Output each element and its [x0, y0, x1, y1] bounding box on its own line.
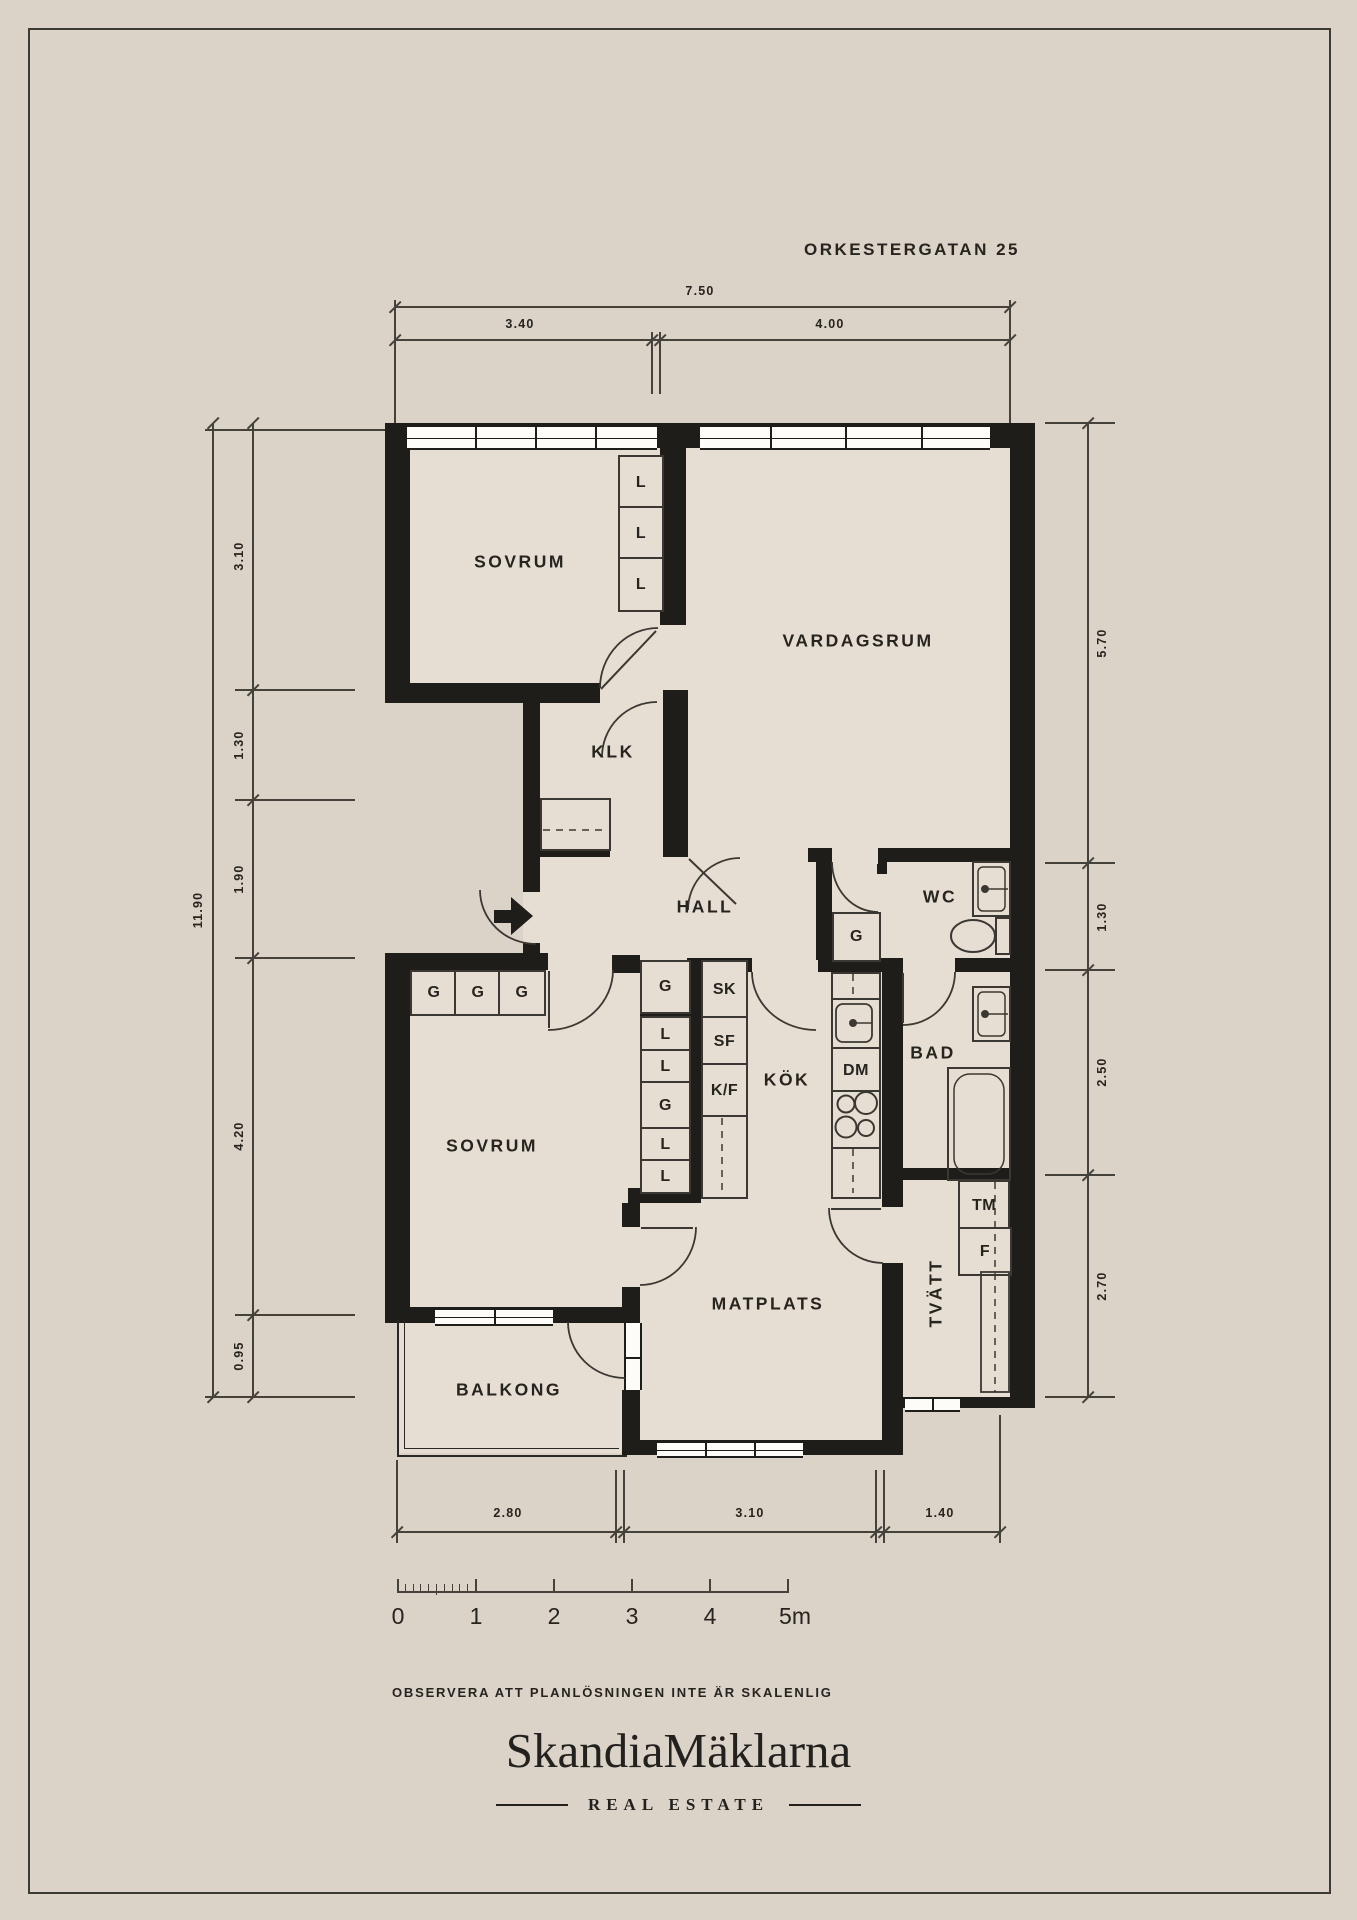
entrance-arrow-tail: [494, 910, 511, 923]
dim-ext: [1045, 969, 1115, 971]
scale-label-1: 1: [470, 1603, 483, 1630]
dim-ext: [1045, 1174, 1115, 1176]
dim-ext: [394, 300, 396, 423]
scale-label-0: 0: [392, 1603, 405, 1630]
scale-minor-tick: [459, 1584, 460, 1593]
scale-label-3: 3: [626, 1603, 639, 1630]
brand-logo: SkandiaMäklarna: [0, 1722, 1357, 1779]
scale-tick: [553, 1579, 555, 1593]
room-label-wc: WC: [923, 887, 957, 908]
dim-ext: [205, 1396, 355, 1398]
dim-label-left-seg3: 4.20: [232, 1121, 246, 1150]
floorplan-page: L L L G G G G L L G L L G SK SF K/F DM T…: [0, 0, 1357, 1920]
room-label-vardagsrum: VARDAGSRUM: [782, 631, 933, 652]
dim-label-top-total: 7.50: [685, 284, 714, 298]
dim-ext: [1009, 300, 1011, 423]
disclaimer-text: OBSERVERA ATT PLANLÖSNINGEN INTE ÄR SKAL…: [392, 1685, 833, 1700]
scale-minor-tick: [444, 1584, 445, 1593]
room-label-hall: HALL: [677, 897, 734, 918]
dim-ext: [875, 1470, 877, 1543]
stove-burner: [855, 1092, 877, 1114]
room-label-balkong: BALKONG: [456, 1380, 562, 1401]
dim-label-left-seg4: 0.95: [232, 1341, 246, 1370]
dim-label-left-seg2: 1.90: [232, 864, 246, 893]
doors-fixtures-layer: [0, 0, 1357, 1920]
dim-label-top-seg0: 3.40: [505, 317, 534, 331]
dim-label-bottom-seg0: 2.80: [493, 1506, 522, 1520]
scale-label-4: 4: [704, 1603, 717, 1630]
dim-label-left-seg1: 1.30: [232, 730, 246, 759]
dim-ext: [205, 429, 385, 431]
stove-burner: [838, 1096, 855, 1113]
bathtub: [948, 1068, 1010, 1180]
dim-ext: [1045, 1396, 1115, 1398]
dim-label-right-seg1: 1.30: [1095, 902, 1109, 931]
room-label-klk: KLK: [591, 742, 634, 763]
scale-minor-tick: [428, 1584, 429, 1593]
dim-ext: [235, 957, 355, 959]
dim-ext: [999, 1415, 1001, 1543]
dim-label-right-seg3: 2.70: [1095, 1271, 1109, 1300]
dim-label-top-seg1: 4.00: [815, 317, 844, 331]
dim-line-bottom: [397, 1531, 1000, 1533]
matplats-door-arc: [640, 1227, 696, 1285]
scale-minor-tick: [405, 1584, 406, 1593]
wc-door-arc: [832, 862, 878, 912]
dim-ext: [396, 1460, 398, 1543]
entrance-arrow-icon: [511, 897, 533, 935]
room-label-sovrum-top: SOVRUM: [474, 552, 566, 573]
dim-ext: [883, 1470, 885, 1543]
sovrum-bottom-door-arc: [548, 970, 613, 1030]
dim-ext: [1045, 422, 1115, 424]
bad-door-arc: [903, 972, 955, 1025]
dim-ext: [1045, 862, 1115, 864]
toilet-tank: [996, 918, 1010, 954]
dim-label-bottom-seg1: 3.10: [735, 1506, 764, 1520]
room-label-matplats: MATPLATS: [712, 1294, 825, 1315]
scale-tick: [475, 1579, 477, 1593]
scale-label-2: 2: [548, 1603, 561, 1630]
tagline-dash: [789, 1804, 861, 1806]
room-label-kok: KÖK: [764, 1070, 810, 1091]
scale-minor-tick: [452, 1584, 453, 1593]
dim-ext: [235, 799, 355, 801]
tagline-dash: [496, 1804, 568, 1806]
dim-ext: [659, 332, 661, 394]
dim-ext: [651, 332, 653, 394]
sovrum-top-door-leaf: [601, 631, 656, 689]
balkong-door-arc: [568, 1322, 625, 1378]
stove-burner: [858, 1120, 874, 1136]
dim-label-right-seg0: 5.70: [1095, 628, 1109, 657]
scale-minor-tick: [413, 1584, 414, 1593]
dim-line-right: [1087, 423, 1089, 1397]
room-label-sovrum-bottom: SOVRUM: [446, 1136, 538, 1157]
dim-ext: [235, 689, 355, 691]
toilet-bowl: [951, 920, 995, 952]
dim-ext: [235, 1314, 355, 1316]
scale-tick: [709, 1579, 711, 1593]
stove-burner: [836, 1117, 857, 1138]
room-label-bad: BAD: [910, 1043, 955, 1064]
page-title: ORKESTERGATAN 25: [620, 240, 1020, 260]
scale-tick: [631, 1579, 633, 1593]
scale-label-5m: 5m: [779, 1603, 811, 1630]
tagline-text: REAL ESTATE: [588, 1795, 769, 1815]
scale-tick: [397, 1579, 399, 1593]
dim-label-left-seg0: 3.10: [232, 541, 246, 570]
dim-line-left-inner: [252, 423, 254, 1397]
dim-label-bottom-seg2: 1.40: [925, 1506, 954, 1520]
dim-label-right-seg2: 2.50: [1095, 1057, 1109, 1086]
room-label-tvatt: TVÄTT: [926, 1259, 947, 1328]
dim-line-top-inner: [395, 339, 1010, 341]
dim-ext: [615, 1470, 617, 1543]
bathtub-inner: [954, 1074, 1004, 1174]
kok-door-arc: [752, 972, 816, 1030]
scale-minor-tick: [467, 1584, 468, 1593]
dim-ext: [623, 1470, 625, 1543]
tvatt-door-arc: [829, 1208, 883, 1263]
scale-bar-line: [397, 1591, 788, 1593]
scale-minor-tick: [420, 1584, 421, 1593]
scale-tick: [787, 1579, 789, 1593]
dim-label-left-total: 11.90: [191, 892, 205, 929]
dim-line-top-outer: [395, 306, 1010, 308]
brand-tagline: REAL ESTATE: [0, 1795, 1357, 1815]
dim-line-left-outer: [212, 423, 214, 1397]
scale-minor-tick: [436, 1584, 437, 1595]
